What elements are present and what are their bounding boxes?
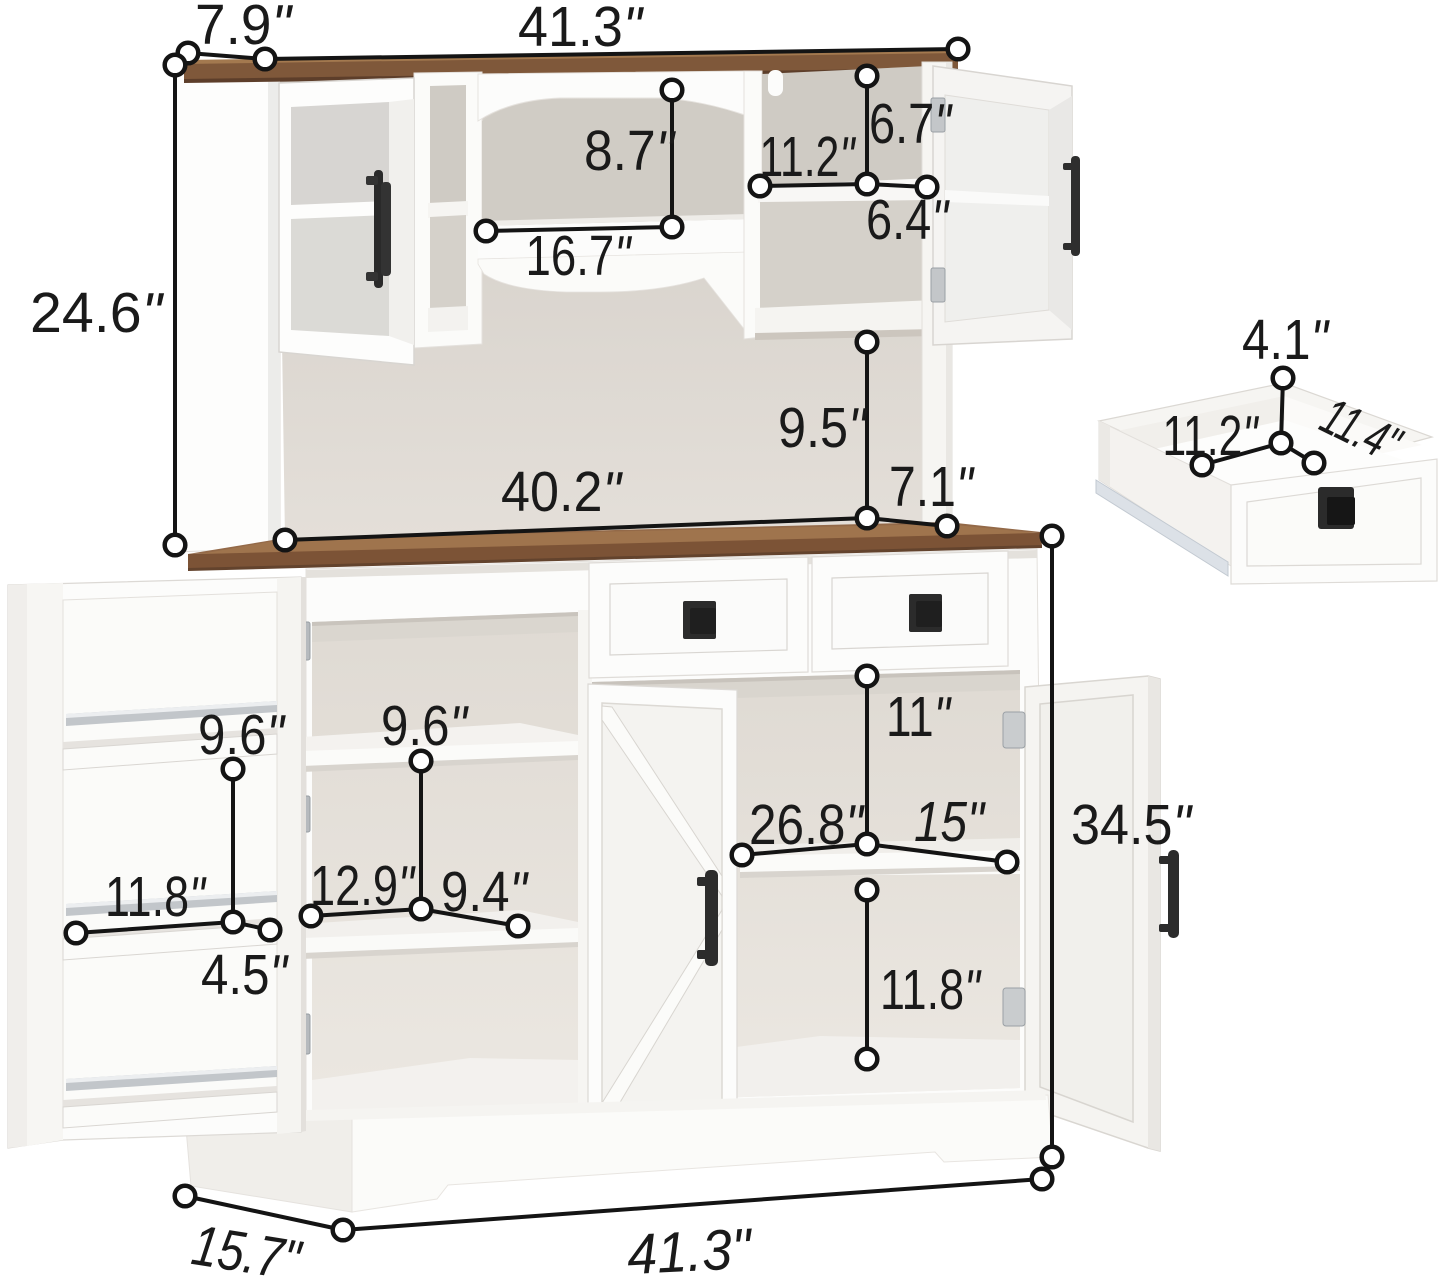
svg-text:7.9": 7.9" bbox=[195, 0, 294, 57]
svg-text:6.4": 6.4" bbox=[866, 188, 950, 252]
svg-text:8.7": 8.7" bbox=[584, 119, 677, 183]
svg-text:34.5": 34.5" bbox=[1071, 793, 1194, 857]
svg-text:15": 15" bbox=[914, 790, 986, 854]
svg-text:11.8": 11.8" bbox=[880, 958, 982, 1022]
svg-text:26.8": 26.8" bbox=[749, 793, 865, 857]
svg-text:6.7": 6.7" bbox=[869, 92, 953, 156]
svg-text:4.5": 4.5" bbox=[201, 943, 289, 1007]
svg-text:9.6": 9.6" bbox=[381, 694, 469, 758]
svg-text:11.2": 11.2" bbox=[1163, 404, 1260, 468]
svg-text:41.3": 41.3" bbox=[625, 1217, 755, 1280]
svg-text:11": 11" bbox=[886, 685, 952, 749]
svg-text:11.8": 11.8" bbox=[105, 865, 207, 929]
svg-text:9.5": 9.5" bbox=[778, 396, 868, 460]
svg-text:12.9": 12.9" bbox=[310, 854, 416, 918]
svg-text:7.1": 7.1" bbox=[889, 455, 975, 519]
svg-text:4.1": 4.1" bbox=[1242, 308, 1330, 372]
svg-text:9.4": 9.4" bbox=[441, 860, 529, 924]
svg-text:41.3": 41.3" bbox=[518, 0, 645, 59]
svg-text:9.6": 9.6" bbox=[198, 703, 286, 767]
svg-text:11.2": 11.2" bbox=[760, 125, 857, 189]
svg-text:16.7": 16.7" bbox=[526, 224, 633, 288]
svg-text:40.2": 40.2" bbox=[501, 460, 624, 524]
svg-text:24.6": 24.6" bbox=[30, 281, 165, 345]
